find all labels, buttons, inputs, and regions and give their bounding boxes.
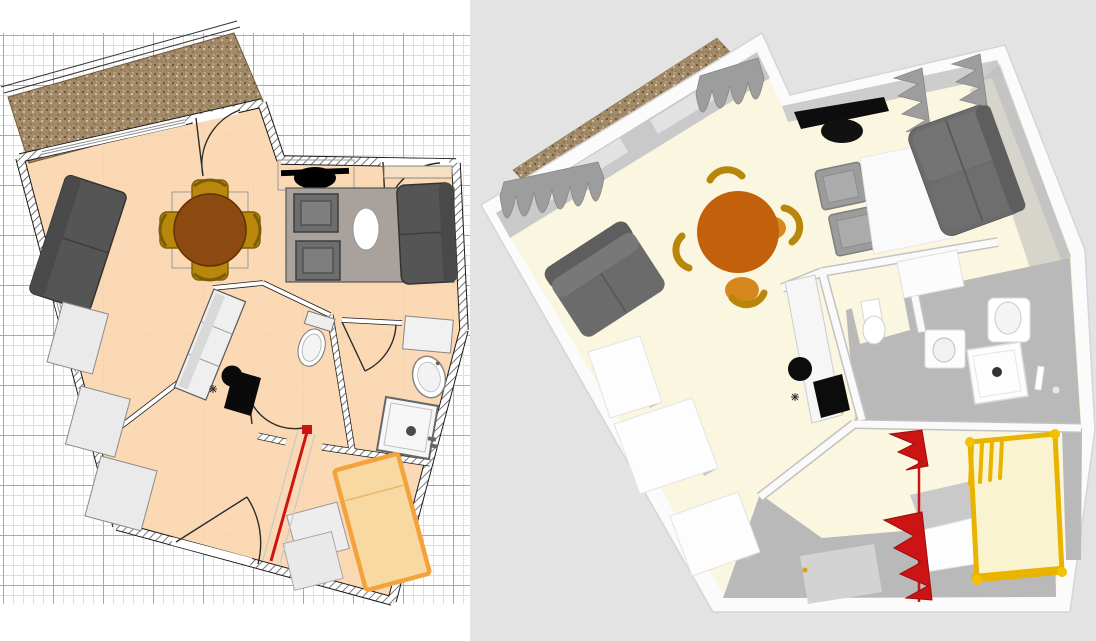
plan-2d-canvas[interactable] bbox=[0, 0, 470, 641]
coffee-table-2d[interactable] bbox=[353, 208, 379, 250]
view-3d-panel[interactable] bbox=[470, 0, 1096, 641]
bathroom-cabinet-2d[interactable] bbox=[403, 316, 454, 353]
plan-2d-panel[interactable] bbox=[0, 0, 470, 641]
dining-table-3d bbox=[697, 191, 779, 273]
washbasin-3d bbox=[988, 298, 1030, 342]
armchair-2d[interactable] bbox=[296, 241, 340, 280]
door-handle-icon bbox=[803, 568, 808, 573]
gold-bed-3d bbox=[965, 429, 1067, 585]
sofa-right-2d[interactable] bbox=[396, 183, 457, 285]
armchair-2d[interactable] bbox=[294, 194, 338, 232]
sideboard-2d[interactable] bbox=[384, 166, 452, 178]
view-3d-canvas[interactable] bbox=[470, 0, 1096, 641]
sink-2d[interactable] bbox=[222, 366, 243, 387]
home-design-app bbox=[0, 0, 1096, 641]
washing-machine-3d bbox=[925, 330, 965, 368]
shower-tray-3d bbox=[967, 342, 1028, 404]
dining-table[interactable] bbox=[174, 194, 246, 266]
burner-icon bbox=[209, 385, 217, 393]
armchair-3d bbox=[815, 162, 868, 211]
shower-2d[interactable] bbox=[377, 397, 438, 459]
